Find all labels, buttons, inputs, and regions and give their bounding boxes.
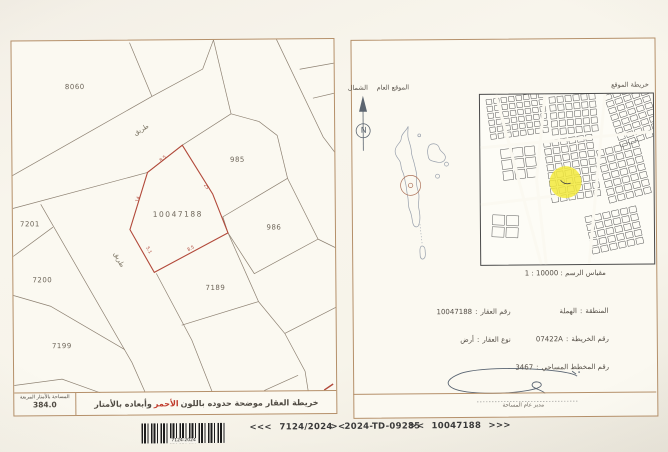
note-pre: خريطة العقار موضحة حدوده باللون <box>181 398 319 408</box>
field-label: نوع العقار <box>482 336 511 344</box>
field-value: الهملة <box>560 307 577 315</box>
cadastral-map-panel: 8060 7201 7200 7199 10047188 985 986 718… <box>10 38 337 417</box>
field-label: المنطقة <box>585 307 608 315</box>
plot-label: 8060 <box>65 83 85 91</box>
location-map-label: خريطة الموقع <box>591 81 649 89</box>
area-cell: المساحة بالأمتار المربعة 384.0 <box>14 393 76 415</box>
note-post: وأبعاده بالأمتار <box>94 399 152 408</box>
field-value: 07422A <box>536 335 563 343</box>
field-label: رقم العقار <box>480 308 510 316</box>
field-value: 3467 <box>515 363 533 371</box>
main-parcel-label: 10047188 <box>153 210 203 219</box>
barcode-number: 7124-2024 <box>169 438 198 444</box>
scale-label: مقياس الرسم : 10000 : 1 <box>495 269 635 278</box>
code-chevrons-left: <<< <box>249 422 271 432</box>
map-footer: المساحة بالأمتار المربعة 384.0 خريطة الع… <box>14 390 336 416</box>
parcel-boundary-red <box>129 144 333 392</box>
field-property-type: نوع العقار:أرض <box>460 336 511 344</box>
code-separator: >< <box>330 422 345 432</box>
street-map <box>479 92 655 265</box>
field-label: رقم المخطط المساحي <box>541 363 609 372</box>
plot-label: 985 <box>230 156 245 164</box>
field-parcel-number: رقم العقار:10047188 <box>436 308 510 317</box>
plot-label: 7201 <box>20 220 40 228</box>
plot-label: 986 <box>266 223 281 231</box>
area-value: 384.0 <box>14 400 75 409</box>
code-case-number: 7124/2024 <box>279 422 332 432</box>
field-label: رقم الخريطة <box>571 335 609 343</box>
general-location-label: الموقع العام <box>371 83 415 91</box>
note-red-word: الأحمر <box>154 399 179 408</box>
code-separator: >< <box>409 421 424 431</box>
highlighted-site-circle <box>549 166 581 198</box>
site-marker-circle <box>401 175 421 195</box>
field-area: المنطقة:الهملة <box>560 307 609 315</box>
code-parcel-number: 10047188 <box>431 421 481 431</box>
barcode: 7124-2024 <box>141 423 225 444</box>
north-label: الشمال <box>345 84 371 92</box>
signature <box>448 368 580 402</box>
field-value: 10047188 <box>436 308 472 316</box>
scanned-cadastral-document: 8060 7201 7200 7199 10047188 985 986 718… <box>0 0 668 452</box>
plot-label: 7199 <box>52 342 72 350</box>
field-map-number: رقم الخريطة:07422A <box>536 335 609 344</box>
document-sheet: 8060 7201 7200 7199 10047188 985 986 718… <box>0 0 668 452</box>
signature-caption: مدير عام المساحة <box>463 402 583 409</box>
bahrain-outline-map <box>395 126 449 259</box>
plot-label: 7189 <box>205 284 225 292</box>
field-survey-plan-number: رقم المخطط المساحي:3467 <box>515 363 609 372</box>
plot-label: 7200 <box>32 276 52 284</box>
map-note: خريطة العقار موضحة حدوده باللون الأحمر و… <box>76 391 336 415</box>
field-value: أرض <box>460 336 474 344</box>
compass-icon <box>356 96 370 151</box>
compass-n-letter: N <box>357 126 370 135</box>
code-chevrons-right: >>> <box>488 421 510 431</box>
